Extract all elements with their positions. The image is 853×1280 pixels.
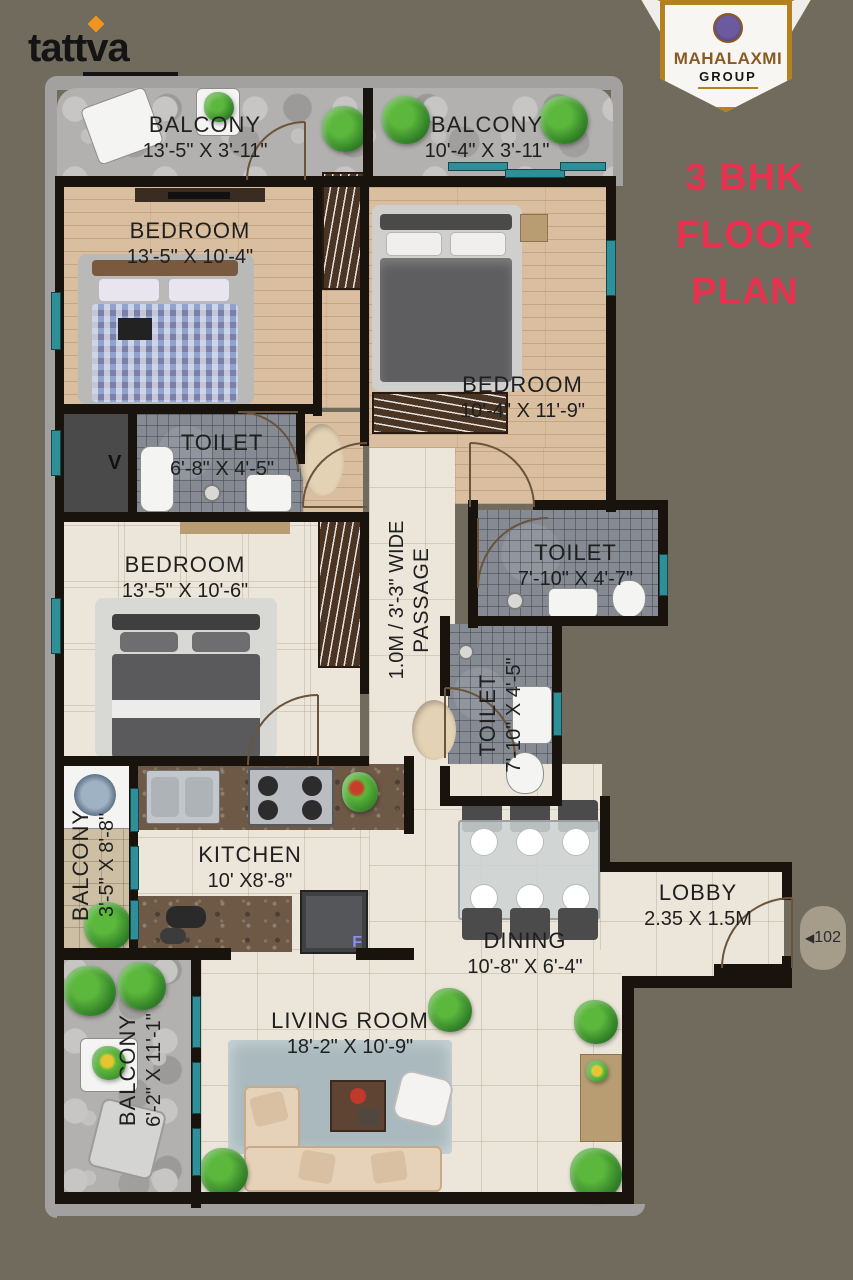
dining-label: DINING 10'-8" X 6'-4" [430, 928, 620, 979]
kitchen-label: KITCHEN 10' X8'-8" [135, 842, 365, 893]
balcony-left-label: BALCONY 3'-5" X 8'-8" [68, 775, 128, 955]
vent-mark: V [108, 452, 132, 476]
balcony-tl-label: BALCONY 13'-5" X 3'-11" [95, 112, 315, 163]
balcony-bottom-label: BALCONY 6'-2" X 11'-1" [115, 980, 175, 1160]
door-arc-bedroom1 [303, 443, 367, 507]
toilet2-label: TOILET 7'-10" X 4'-7" [488, 540, 663, 591]
living-label: LIVING ROOM 18'-2" X 10'-9" [205, 1008, 495, 1059]
toilet1-label: TOILET 6'-8" X 4'-5" [142, 430, 302, 481]
balcony-tr-label: BALCONY 10'-4" X 3'-11" [377, 112, 597, 163]
floor-plan-page: { "page": { "background": "#716b5d" }, "… [0, 0, 853, 1280]
bedroom1-label: BEDROOM 13'-5" X 10'-4" [75, 218, 305, 269]
door-arc-bedroom2 [470, 443, 534, 507]
lobby-label: LOBBY 2.35 X 1.5M [608, 880, 788, 931]
toilet3-label: TOILET 7'-10" X 4'-5" [475, 630, 535, 800]
unit-arrow-icon: ◀ [805, 931, 814, 945]
unit-number: 102 [814, 929, 841, 947]
unit-number-plate: ◀ 102 [800, 906, 846, 970]
bedroom2-label: BEDROOM 10'-4" X 11'-9" [425, 372, 620, 423]
door-arc-bedroom3 [248, 695, 318, 765]
bedroom3-label: BEDROOM 13'-5" X 10'-6" [70, 552, 300, 603]
passage-label: 1.0M / 3'-3" WIDE PASSAGE [385, 500, 445, 700]
